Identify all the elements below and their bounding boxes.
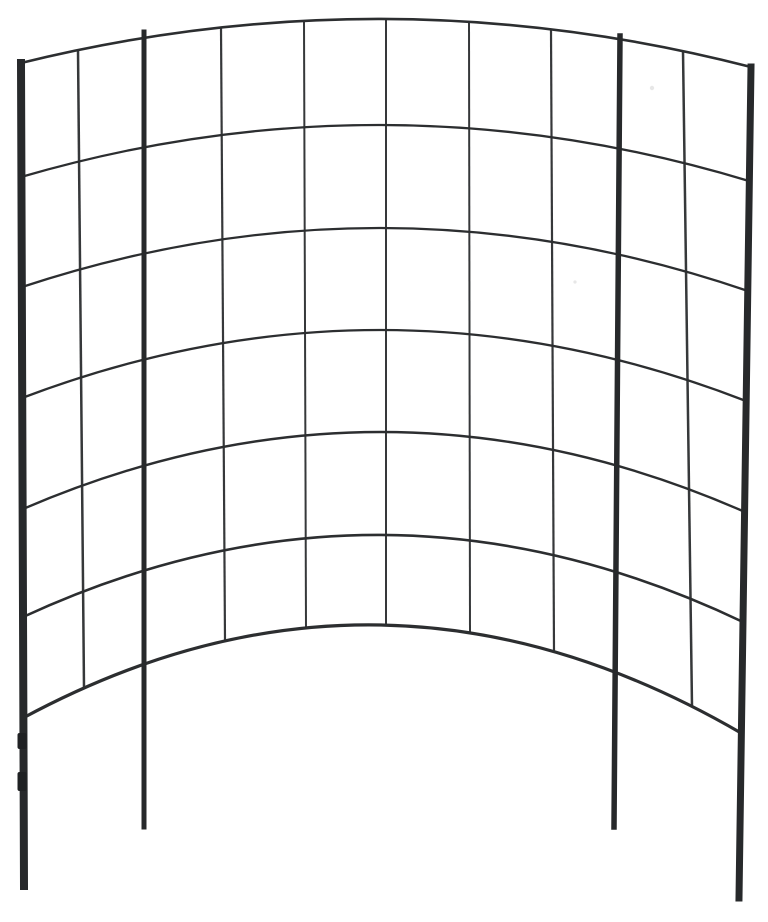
photo-background: [0, 0, 768, 922]
dust-speck-0: [650, 86, 654, 90]
product-photo: [0, 0, 768, 922]
post-clip-0: [18, 733, 27, 749]
trellis-image: [0, 0, 768, 922]
dust-speck-1: [573, 280, 576, 283]
outer-left-post: [21, 63, 24, 886]
post-clip-1: [18, 772, 27, 791]
